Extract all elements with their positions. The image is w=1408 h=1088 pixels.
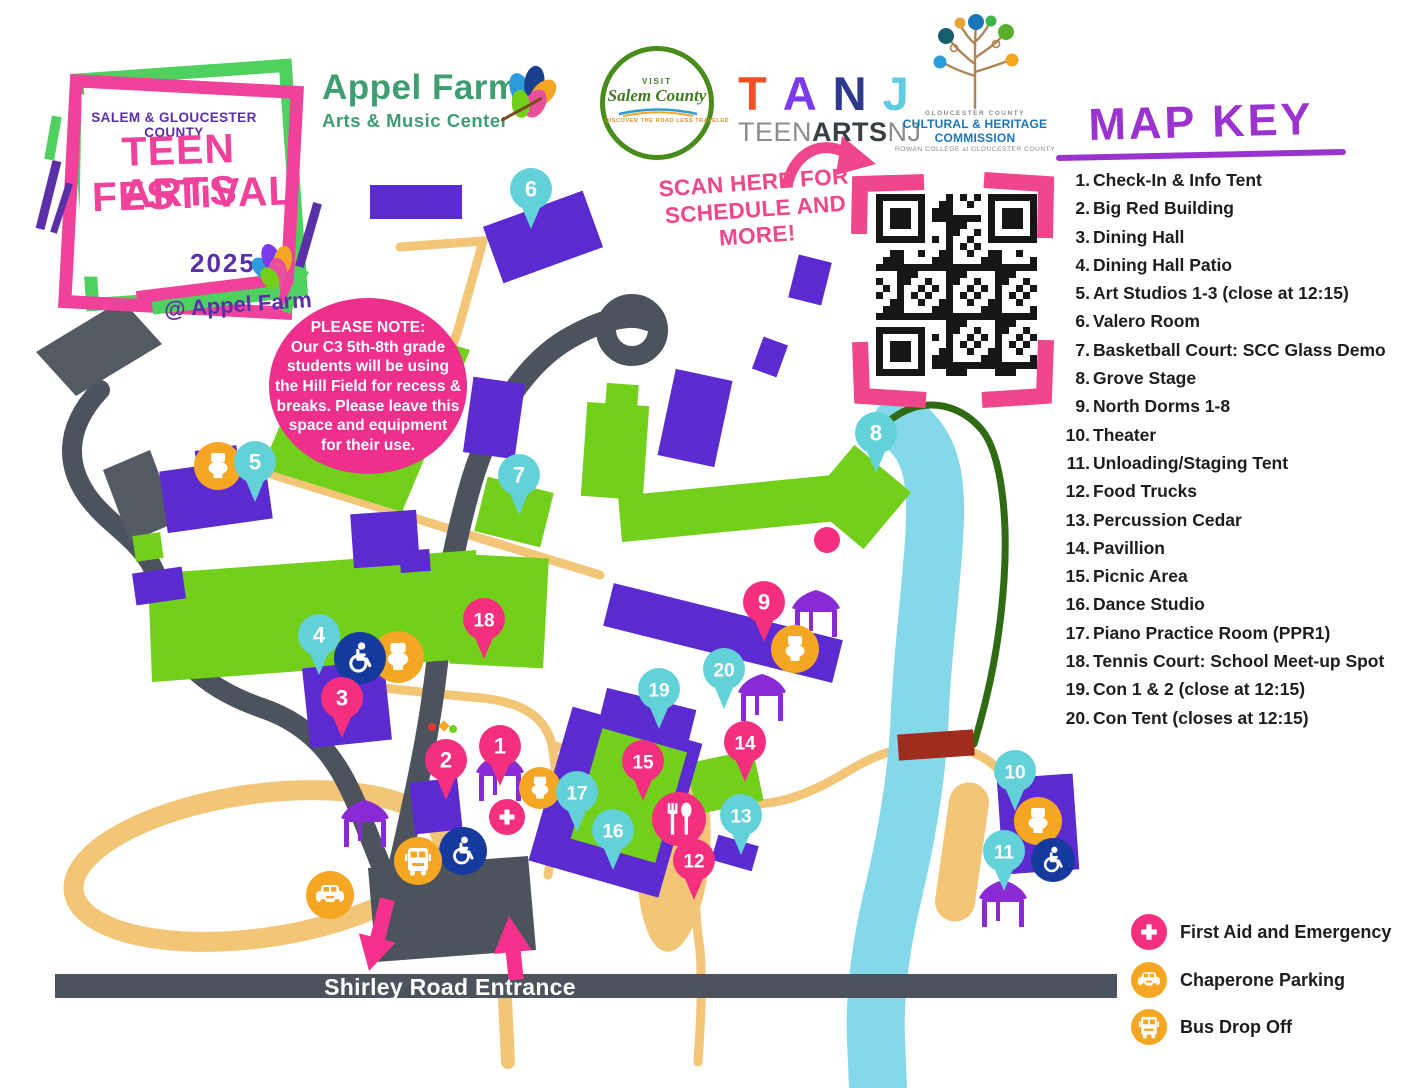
tanj-letter: T [738, 67, 767, 120]
svg-text:19: 19 [648, 681, 669, 702]
tanj-teen: TEEN [738, 117, 812, 147]
legend-label: Chaperone Parking [1180, 970, 1345, 991]
map-key-item-number: 6. [1056, 307, 1090, 335]
chc-title-2: COMMISSION [890, 131, 1060, 145]
map-key-underline [1056, 149, 1346, 161]
map-key-list: 1.Check-In & Info Tent2.Big Red Building… [1056, 166, 1386, 732]
svg-text:20: 20 [713, 661, 734, 682]
svg-text:13: 13 [730, 807, 751, 828]
svg-text:17: 17 [566, 784, 587, 805]
map-key-item-label: Grove Stage [1093, 364, 1196, 392]
appel-farm-subtitle: Arts & Music Center [322, 110, 520, 132]
map-key-item-number: 18. [1056, 647, 1090, 675]
bridge [897, 729, 975, 760]
toilet-icon [519, 767, 561, 809]
map-key-item: 8.Grove Stage [1056, 364, 1386, 392]
map-key-item: 9.North Dorms 1-8 [1056, 392, 1386, 420]
map-key-item-label: Piano Practice Room (PPR1) [1093, 619, 1330, 647]
salem-swoosh [605, 106, 709, 118]
map-key-item-number: 17. [1056, 619, 1090, 647]
map-key-item-label: Art Studios 1-3 (close at 12:15) [1093, 279, 1349, 307]
map-key-item-number: 13. [1056, 506, 1090, 534]
salem-county-logo: VISIT Salem County DISCOVER THE ROAD LES… [600, 46, 714, 160]
map-key-item-label: Picnic Area [1093, 562, 1188, 590]
map-key-item: 5.Art Studios 1-3 (close at 12:15) [1056, 279, 1386, 307]
map-key-item-label: Dance Studio [1093, 590, 1205, 618]
cultural-heritage-logo: GLOUCESTER COUNTY CULTURAL & HERITAGE CO… [890, 14, 1060, 153]
map-key-item-number: 15. [1056, 562, 1090, 590]
tanj-arts: ARTS [812, 117, 888, 147]
map-key-item-label: Valero Room [1093, 307, 1200, 335]
map-key-item-number: 4. [1056, 251, 1090, 279]
appel-farm-name: Appel Farm [322, 68, 520, 108]
map-marker-20: 20 [703, 648, 745, 709]
svg-text:15: 15 [632, 753, 654, 774]
car-icon [306, 871, 354, 919]
map-key-item-label: Big Red Building [1093, 194, 1234, 222]
wheelchair-icon [1031, 838, 1075, 882]
legend-row-bus: Bus Drop Off [1130, 1008, 1292, 1046]
tanj-letter: N [833, 67, 867, 120]
map-key-item-number: 5. [1056, 279, 1090, 307]
map-key-item-number: 19. [1056, 675, 1090, 703]
toilet-icon [771, 625, 819, 673]
firstaid-icon [489, 799, 525, 835]
festival-title-2: FESTiVAL [91, 171, 282, 219]
map-key-item: 20.Con Tent (closes at 12:15) [1056, 704, 1386, 732]
scan-here-text: SCAN HERE FOR SCHEDULE AND MORE! [645, 163, 865, 257]
svg-text:4: 4 [313, 623, 326, 648]
bus-icon [394, 837, 442, 885]
map-key-item-label: Percussion Cedar [1093, 506, 1242, 534]
svg-text:16: 16 [602, 822, 623, 843]
svg-text:12: 12 [683, 852, 704, 873]
map-key-item-label: Dining Hall Patio [1093, 251, 1232, 279]
tanj-letter: A [783, 67, 817, 120]
logo-sliver-green [44, 115, 61, 160]
car-icon [1130, 961, 1168, 999]
please-note-text: PLEASE NOTE: Our C3 5th-8th grade studen… [270, 318, 466, 456]
map-key-item-number: 9. [1056, 392, 1090, 420]
qr-code [859, 180, 1046, 400]
food-icon [652, 792, 706, 846]
svg-text:2: 2 [440, 748, 452, 773]
map-key-item-label: Basketball Court: SCC Glass Demo [1093, 336, 1386, 364]
map-key-item-number: 14. [1056, 534, 1090, 562]
svg-text:5: 5 [249, 450, 261, 475]
svg-text:11: 11 [994, 843, 1015, 864]
map-key-title: MAP KEY [1055, 92, 1346, 152]
map-key-item-number: 3. [1056, 223, 1090, 251]
svg-text:10: 10 [1004, 763, 1025, 784]
map-key-item: 10.Theater [1056, 421, 1386, 449]
chc-tree-icon [920, 14, 1030, 110]
map-key-item: 12.Food Trucks [1056, 477, 1386, 505]
map-key: MAP KEY 1.Check-In & Info Tent2.Big Red … [1056, 96, 1386, 732]
map-key-item-number: 11. [1056, 449, 1090, 477]
map-key-item: 4.Dining Hall Patio [1056, 251, 1386, 279]
map-key-item-number: 20. [1056, 704, 1090, 732]
svg-text:1: 1 [494, 734, 506, 759]
map-key-item: 19.Con 1 & 2 (close at 12:15) [1056, 675, 1386, 703]
salem-tagline: DISCOVER THE ROAD LESS TRAVELED [605, 118, 709, 124]
chc-title-1: CULTURAL & HERITAGE [890, 117, 1060, 131]
map-key-item-label: Con Tent (closes at 12:15) [1093, 704, 1309, 732]
map-key-item: 17.Piano Practice Room (PPR1) [1056, 619, 1386, 647]
appel-leaf-icon [495, 58, 565, 134]
svg-text:14: 14 [734, 734, 756, 755]
map-key-item-number: 8. [1056, 364, 1090, 392]
legend-row-firstaid: First Aid and Emergency [1130, 913, 1391, 951]
map-key-item-label: Tennis Court: School Meet-up Spot [1093, 647, 1384, 675]
tent-icon [738, 674, 786, 721]
firstaid-icon [1130, 913, 1168, 951]
salem-county-name: Salem County [605, 86, 709, 106]
map-key-item: 16.Dance Studio [1056, 590, 1386, 618]
festival-logo: SALEM & GLOUCESTER COUNTY TEEN ARTS FEST… [40, 52, 330, 352]
map-key-item-label: North Dorms 1-8 [1093, 392, 1230, 420]
map-key-item-number: 7. [1056, 336, 1090, 364]
map-key-item: 7.Basketball Court: SCC Glass Demo [1056, 336, 1386, 364]
festival-leaf-icon [246, 240, 302, 292]
map-key-item: 14.Pavillion [1056, 534, 1386, 562]
map-key-item-number: 2. [1056, 194, 1090, 222]
map-key-item: 13.Percussion Cedar [1056, 506, 1386, 534]
chc-county-line: GLOUCESTER COUNTY [890, 110, 1060, 117]
pink-dot [814, 527, 840, 553]
map-key-item-label: Pavillion [1093, 534, 1165, 562]
svg-text:9: 9 [758, 590, 770, 615]
map-marker-1: 1 [479, 725, 521, 786]
wheelchair-icon [439, 827, 487, 875]
map-key-item: 1.Check-In & Info Tent [1056, 166, 1386, 194]
festival-map-poster: 1234567891011121314151617181920 SALEM & … [0, 0, 1408, 1088]
legend-label: First Aid and Emergency [1180, 922, 1391, 943]
svg-text:8: 8 [870, 421, 882, 446]
chc-rowan-line: ROWAN COLLEGE at GLOUCESTER COUNTY [890, 146, 1060, 153]
map-marker-11: 11 [983, 830, 1025, 891]
map-key-item: 11.Unloading/Staging Tent [1056, 449, 1386, 477]
map-key-item: 18.Tennis Court: School Meet-up Spot [1056, 647, 1386, 675]
map-key-item-number: 12. [1056, 477, 1090, 505]
map-key-item-label: Con 1 & 2 (close at 12:15) [1093, 675, 1305, 703]
map-key-item-number: 16. [1056, 590, 1090, 618]
map-key-item: 3.Dining Hall [1056, 223, 1386, 251]
map-key-item: 15.Picnic Area [1056, 562, 1386, 590]
legend-label: Bus Drop Off [1180, 1017, 1292, 1038]
svg-text:18: 18 [473, 611, 494, 632]
salem-visit-label: VISIT [605, 77, 709, 86]
shirley-road-label: Shirley Road Entrance [300, 974, 600, 1001]
svg-text:6: 6 [525, 177, 537, 202]
appel-farm-logo: Appel Farm Arts & Music Center [322, 68, 520, 132]
map-key-item-label: Food Trucks [1093, 477, 1197, 505]
map-key-item-number: 1. [1056, 166, 1090, 194]
svg-text:7: 7 [513, 463, 525, 488]
map-key-item-label: Check-In & Info Tent [1093, 166, 1262, 194]
map-key-item-label: Theater [1093, 421, 1156, 449]
legend-row-car: Chaperone Parking [1130, 961, 1345, 999]
bus-icon [1130, 1008, 1168, 1046]
svg-text:3: 3 [336, 686, 348, 711]
map-key-item-label: Unloading/Staging Tent [1093, 449, 1288, 477]
wheelchair-icon [334, 632, 386, 684]
map-key-item-label: Dining Hall [1093, 223, 1184, 251]
map-key-item-number: 10. [1056, 421, 1090, 449]
map-key-item: 2.Big Red Building [1056, 194, 1386, 222]
map-key-item: 6.Valero Room [1056, 307, 1386, 335]
toilet-icon [1014, 797, 1062, 845]
